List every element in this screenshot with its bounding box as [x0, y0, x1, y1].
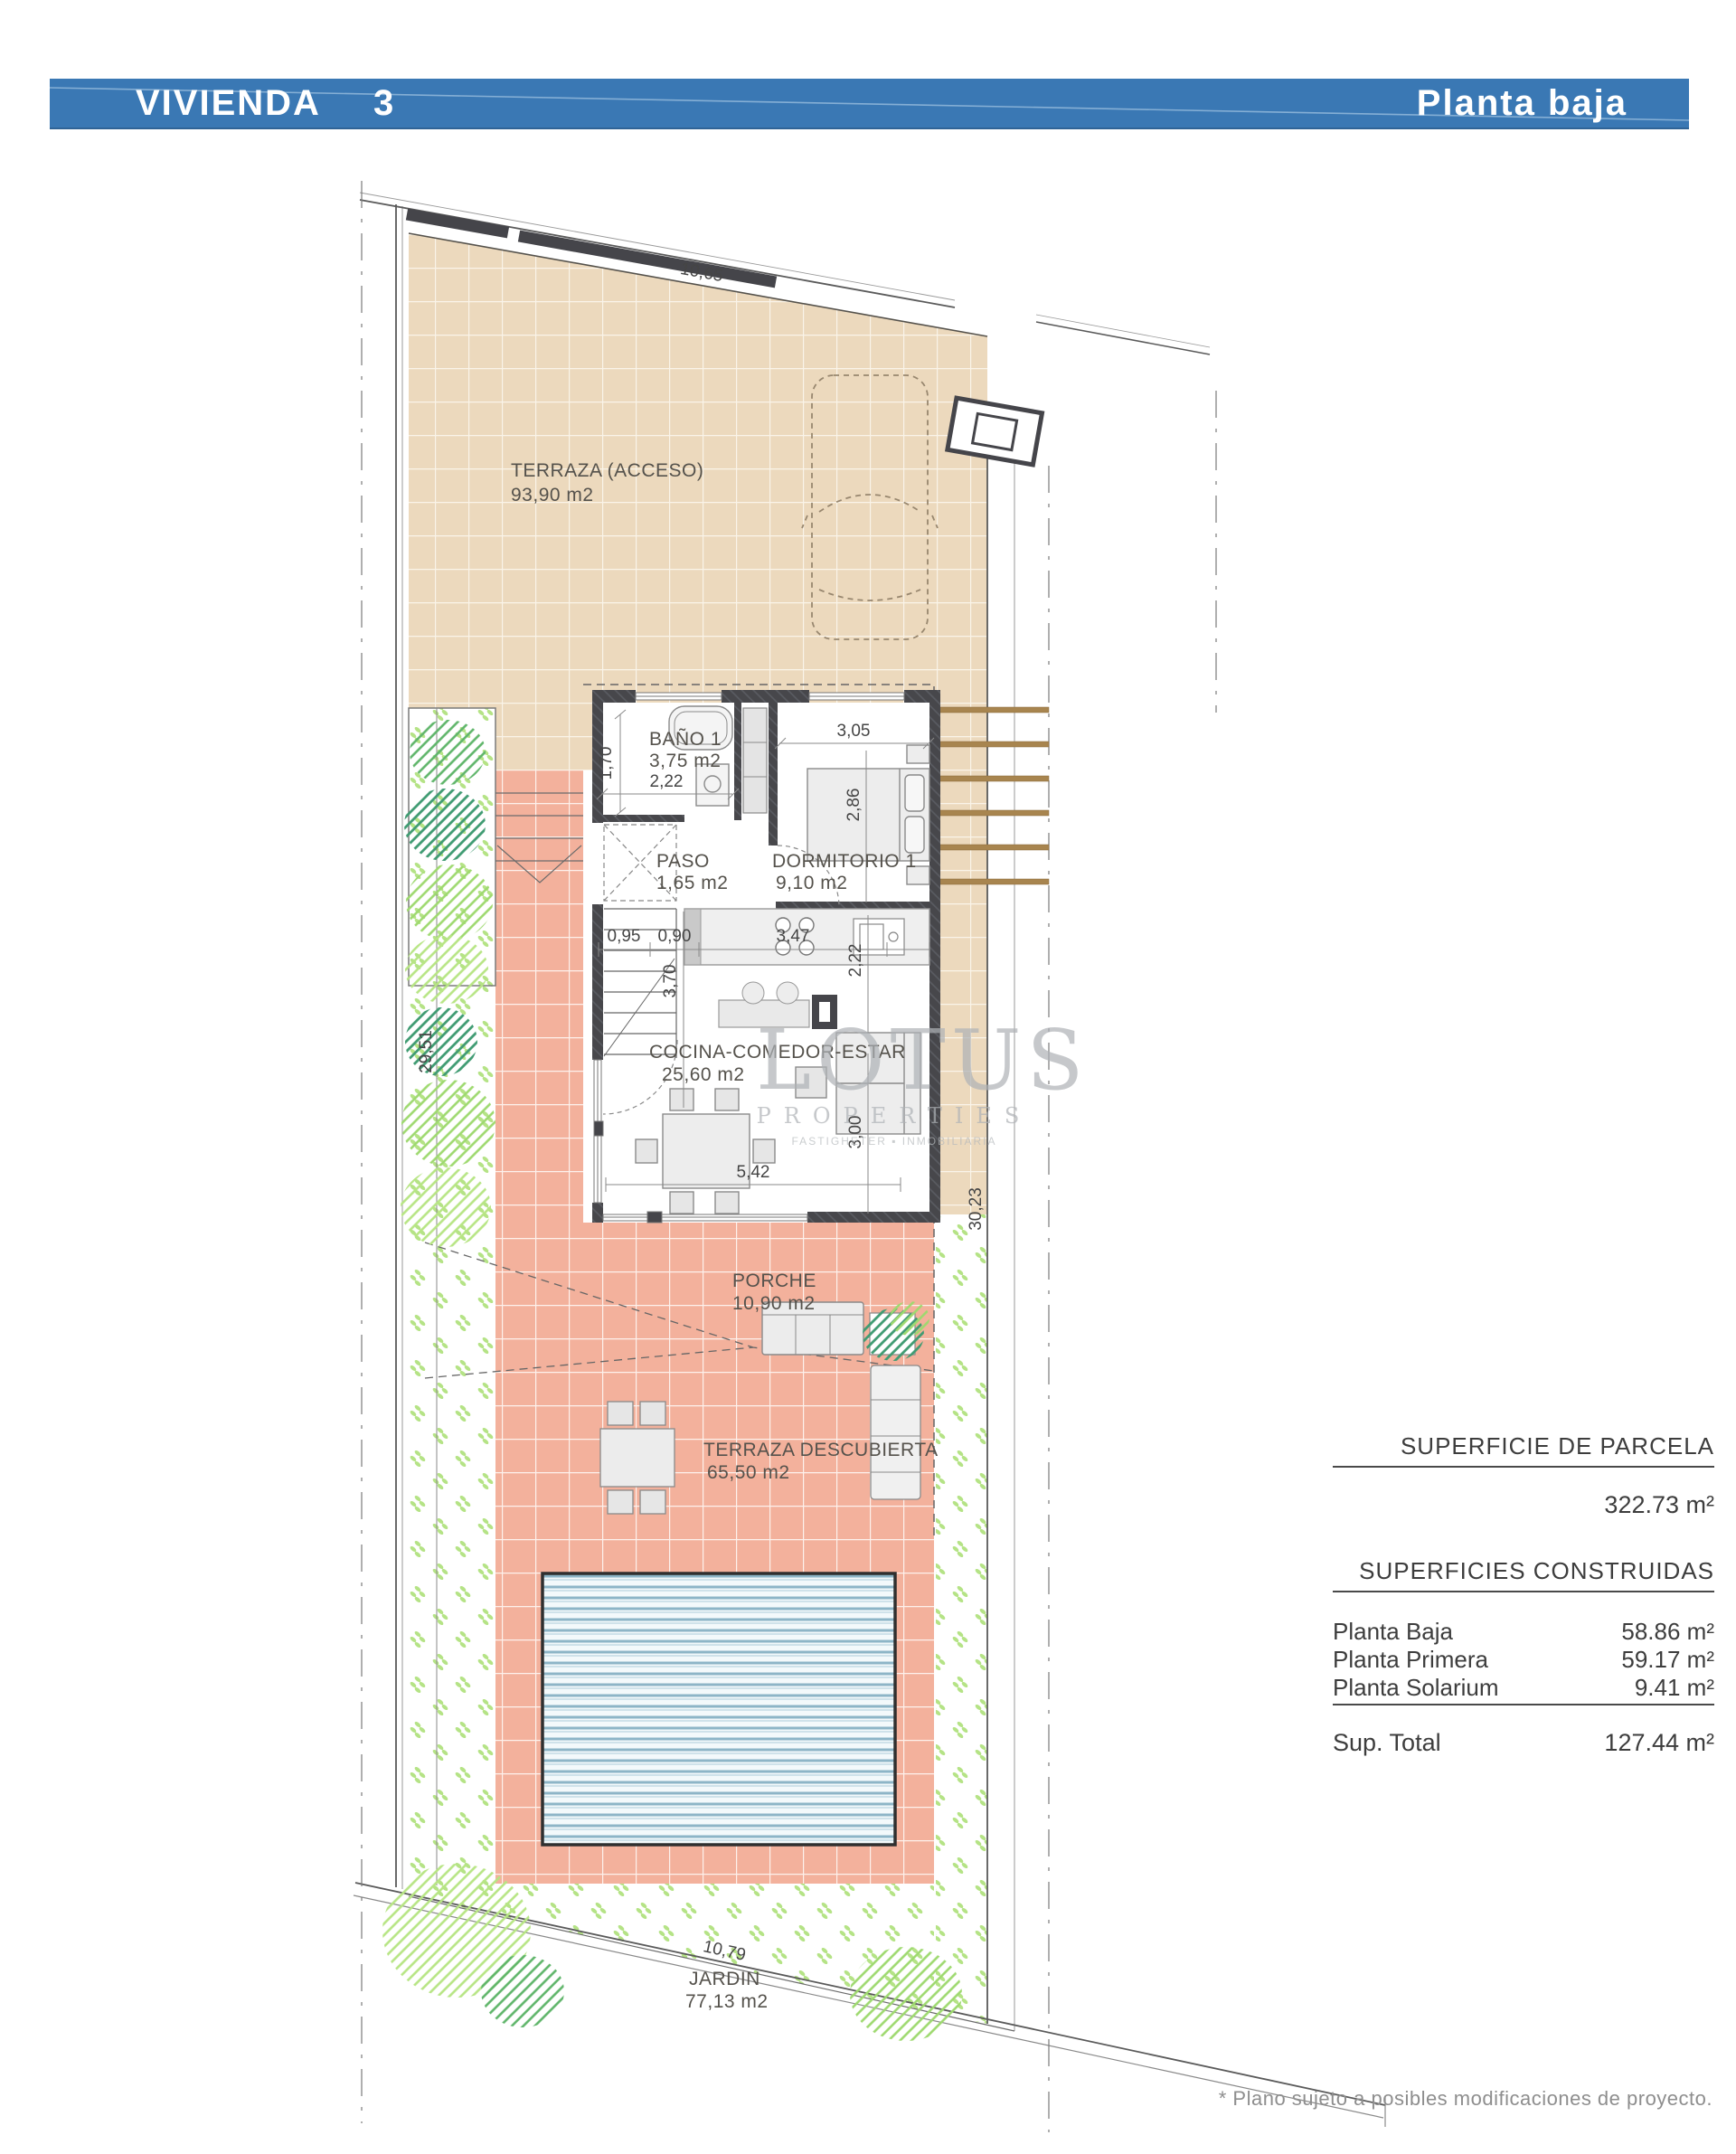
brochure-page: VIVIENDA3 Planta baja	[0, 0, 1736, 2154]
parcel-surface-title: SUPERFICIE DE PARCELA	[1333, 1432, 1714, 1468]
label-dormitorio-name: DORMITORIO 1	[772, 851, 917, 872]
dwelling-label: VIVIENDA	[136, 83, 321, 123]
dim-stair-length: 3,70	[661, 965, 680, 998]
swimming-pool	[542, 1573, 895, 1845]
row-value: 9.41 m²	[1635, 1674, 1714, 1702]
stool	[742, 982, 764, 1004]
parcel-surface-panel: SUPERFICIE DE PARCELA 322.73 m²	[1333, 1432, 1714, 1519]
dim-bano-width: 1,70	[597, 747, 616, 780]
dim-dorm-width: 3,05	[837, 722, 871, 741]
dim-kitchen-depth: 2,22	[846, 944, 865, 978]
table-row: Planta Primera 59.17 m²	[1333, 1646, 1714, 1674]
dwelling-number: 3	[373, 83, 395, 123]
label-cocina-name: COCINA-COMEDOR-ESTAR	[649, 1042, 906, 1063]
label-porche-name: PORCHE	[732, 1271, 816, 1291]
label-bano-area: 3,75 m2	[649, 751, 721, 771]
label-terraza-descubierta-name: TERRAZA DESCUBIERTA	[703, 1440, 939, 1460]
table-row: Planta Baja 58.86 m²	[1333, 1618, 1714, 1646]
coffee-table	[796, 1067, 826, 1098]
dim-bano-depth: 2,22	[650, 772, 684, 791]
parcel-surface-value: 322.73 m²	[1333, 1491, 1714, 1519]
dim-pass-width: 0,90	[658, 927, 692, 946]
label-porche-area: 10,90 m2	[732, 1293, 816, 1314]
dim-plot-left: 29,51	[417, 1030, 436, 1073]
page-title: VIVIENDA3	[136, 83, 395, 124]
table-row: Planta Solarium 9.41 m²	[1333, 1674, 1714, 1702]
window-handle	[594, 1121, 603, 1136]
floor-label: Planta baja	[1417, 83, 1627, 124]
label-jardin-area: 77,13 m2	[685, 1991, 769, 2012]
label-terraza-area: 93,90 m2	[511, 485, 594, 505]
nightstand	[907, 745, 929, 763]
dim-kitchen-width: 3,47	[777, 927, 810, 946]
dim-living-width: 5,42	[737, 1163, 770, 1182]
row-value: 59.17 m²	[1621, 1646, 1714, 1674]
dim-living-depth: 3,00	[846, 1116, 865, 1149]
dim-plot-right: 30,23	[967, 1187, 986, 1231]
total-value: 127.44 m²	[1604, 1729, 1714, 1757]
chair	[715, 1089, 739, 1110]
label-dormitorio-area: 9,10 m2	[776, 873, 847, 893]
row-label: Planta Solarium	[1333, 1674, 1499, 1702]
sun-lounger	[871, 1365, 920, 1499]
chair	[608, 1402, 633, 1425]
row-value: 58.86 m²	[1621, 1618, 1714, 1646]
disclaimer-footnote: * Plano sujeto a posibles modificaciones…	[1219, 2087, 1712, 2111]
kitchen-island	[719, 1000, 809, 1027]
floor-plan-drawing: 10,65 1,70 2,22 3,05 2,86 0,95 0,90 3,47…	[0, 0, 1736, 2154]
chair	[608, 1490, 633, 1514]
stool	[777, 982, 798, 1004]
outdoor-table	[600, 1429, 675, 1487]
label-jardin-name: JARDIN	[689, 1969, 760, 1989]
total-label: Sup. Total	[1333, 1729, 1441, 1757]
page-header: VIVIENDA3 Planta baja	[50, 79, 1689, 129]
label-paso-area: 1,65 m2	[656, 873, 728, 893]
closet	[743, 708, 767, 813]
built-surfaces-title: SUPERFICIES CONSTRUIDAS	[1333, 1557, 1714, 1592]
built-surfaces-rows: Planta Baja 58.86 m² Planta Primera 59.1…	[1333, 1618, 1714, 1705]
chair	[753, 1139, 775, 1163]
label-bano-name: BAÑO 1	[649, 728, 722, 750]
built-surfaces-panel: SUPERFICIES CONSTRUIDAS Planta Baja 58.8…	[1333, 1557, 1714, 1757]
row-label: Planta Baja	[1333, 1618, 1453, 1646]
dim-stair-width: 0,95	[608, 927, 641, 946]
chair	[636, 1139, 657, 1163]
panel-separator	[1333, 1704, 1714, 1705]
chair	[640, 1402, 665, 1425]
row-label: Planta Primera	[1333, 1646, 1488, 1674]
chair	[715, 1192, 739, 1214]
dim-dorm-depth: 2,86	[844, 789, 863, 822]
chair	[640, 1490, 665, 1514]
chair	[670, 1089, 693, 1110]
total-row: Sup. Total 127.44 m²	[1333, 1729, 1714, 1757]
label-terraza-name: TERRAZA (ACCESO)	[511, 460, 703, 481]
label-paso-name: PASO	[656, 851, 710, 872]
label-cocina-area: 25,60 m2	[662, 1064, 745, 1085]
chair	[670, 1192, 693, 1214]
label-terraza-descubierta-area: 65,50 m2	[707, 1462, 790, 1483]
door-handle	[647, 1212, 662, 1223]
